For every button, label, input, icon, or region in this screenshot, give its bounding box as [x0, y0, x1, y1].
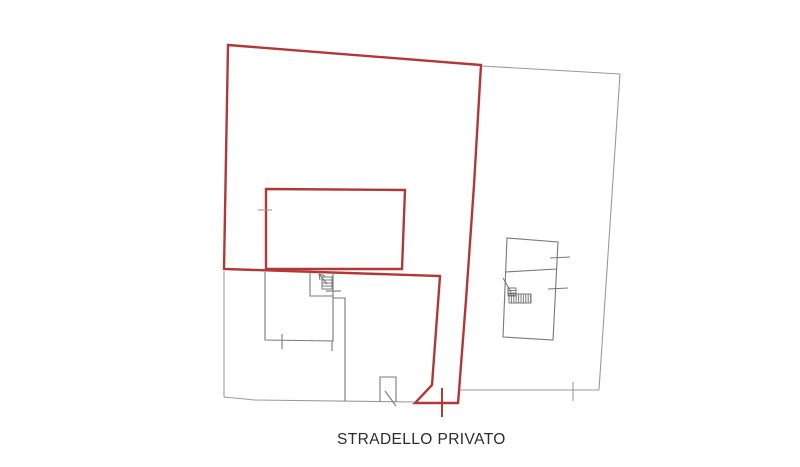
right-building-tick-upper — [550, 257, 570, 258]
right-building-division — [505, 269, 557, 272]
red-building-outline — [266, 189, 405, 269]
gate-rectangle — [380, 377, 396, 402]
right-building-tick-lower — [548, 288, 568, 289]
plan-canvas — [0, 0, 800, 467]
red-parcel-boundary — [224, 45, 481, 403]
right-stair-diagonal — [503, 278, 511, 292]
right-parcel-east-edge — [599, 74, 620, 390]
courtyard-fence — [333, 298, 345, 401]
left-building-outline — [265, 272, 333, 341]
gate-diagonal — [385, 391, 396, 406]
right-parcel-north-edge — [482, 66, 620, 74]
cadastral-plan-page: STRADELLO PRIVATO — [0, 0, 800, 467]
stradello-privato-label: STRADELLO PRIVATO — [337, 431, 506, 449]
left-parcel-south-edge — [224, 397, 415, 402]
